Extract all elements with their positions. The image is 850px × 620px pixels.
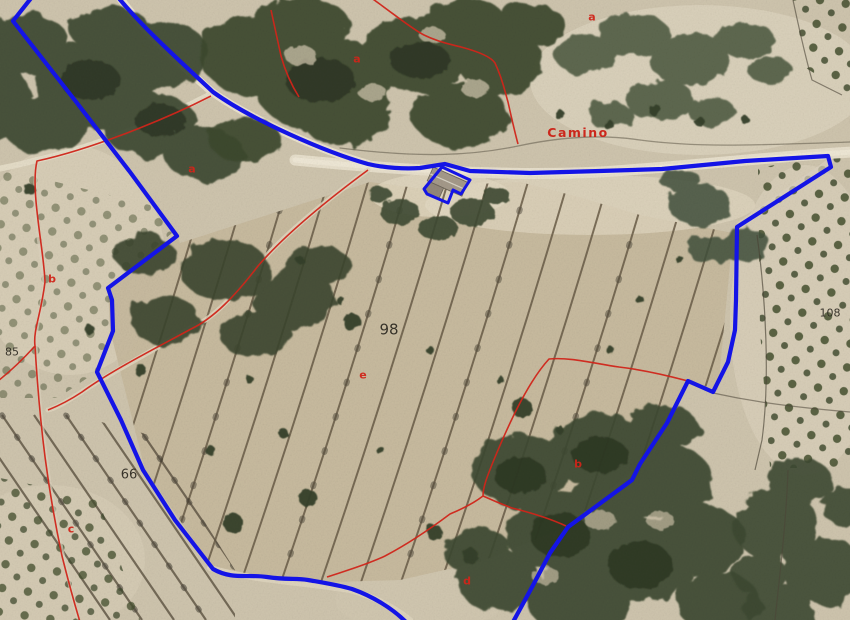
map-viewport[interactable]: 986685108aaabebcdCamino <box>0 0 850 620</box>
photo-grain <box>0 0 850 620</box>
aerial-map-canvas[interactable] <box>0 0 850 620</box>
